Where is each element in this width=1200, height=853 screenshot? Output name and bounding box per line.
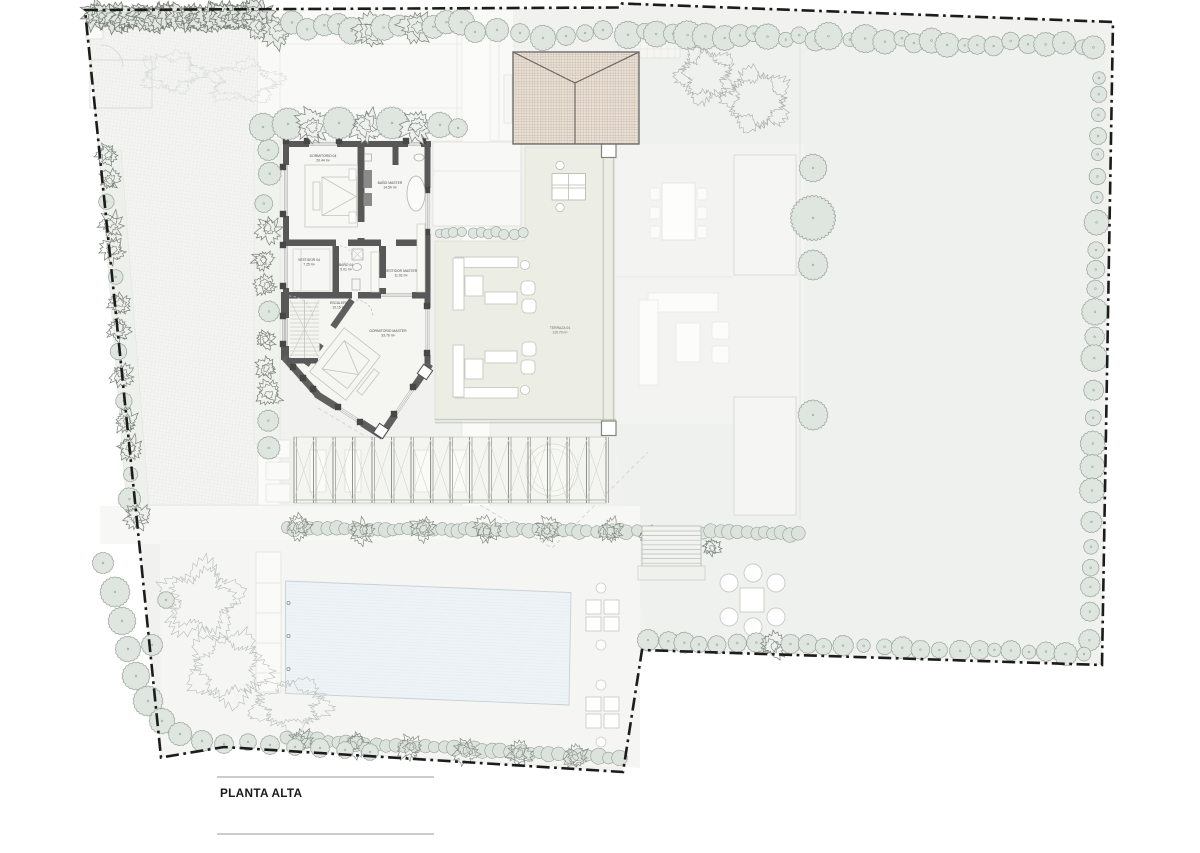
svg-text:PLANTA ALTA: PLANTA ALTA <box>220 786 303 800</box>
svg-text:TERRAZA 04119.70 m²: TERRAZA 04119.70 m² <box>550 326 570 335</box>
svg-text:BAÑO 045.01 m²: BAÑO 045.01 m² <box>339 262 353 272</box>
